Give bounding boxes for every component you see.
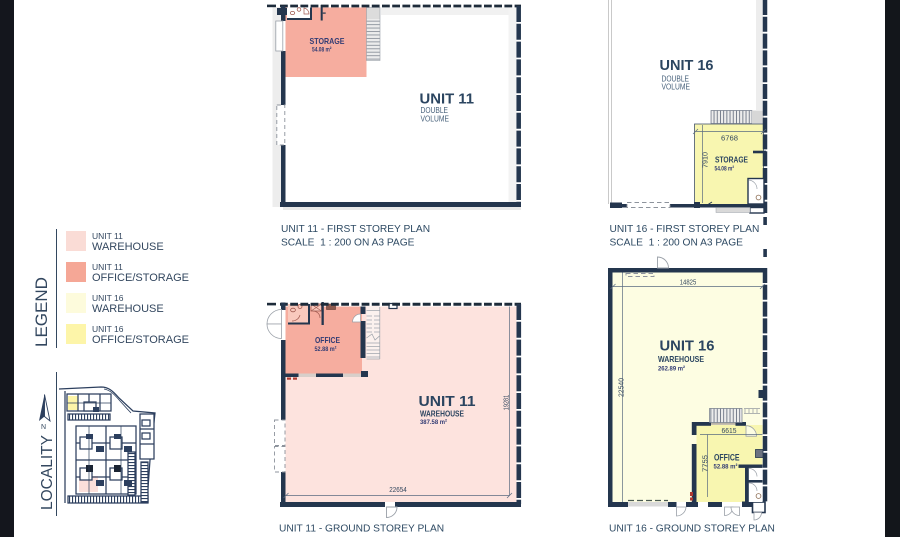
svg-text:WAREHOUSE: WAREHOUSE [92,241,164,253]
svg-text:OFFICE/STORAGE: OFFICE/STORAGE [92,334,189,346]
svg-text:UNIT 11: UNIT 11 [419,393,476,410]
svg-text:UNIT 11 - GROUND STOREY PLAN: UNIT 11 - GROUND STOREY PLAN [279,524,444,535]
svg-text:387.58 m²: 387.58 m² [420,419,448,426]
svg-text:52.88 m²: 52.88 m² [315,346,338,353]
svg-text:LOCALITY: LOCALITY [39,435,56,510]
svg-text:SCALE 1 : 200 ON A3 PAGE: SCALE 1 : 200 ON A3 PAGE [610,238,744,249]
svg-text:UNIT 16: UNIT 16 [92,324,124,334]
svg-text:UNIT 11 - FIRST STOREY PLAN: UNIT 11 - FIRST STOREY PLAN [281,224,430,235]
svg-text:LEGEND: LEGEND [32,277,51,347]
svg-text:54.08 m²: 54.08 m² [715,166,735,173]
svg-text:WAREHOUSE: WAREHOUSE [658,354,704,364]
svg-text:OFFICE/STORAGE: OFFICE/STORAGE [92,272,189,284]
svg-text:UNIT 16 - FIRST STOREY PLAN: UNIT 16 - FIRST STOREY PLAN [610,224,760,235]
svg-text:OFFICE: OFFICE [315,335,340,345]
svg-text:UNIT 16: UNIT 16 [660,57,714,74]
svg-text:SCALE 1 : 200 ON A3 PAGE: SCALE 1 : 200 ON A3 PAGE [281,238,415,249]
svg-text:52.88 m²: 52.88 m² [714,464,739,471]
svg-text:7910: 7910 [703,152,710,168]
svg-text:N: N [41,424,46,431]
svg-text:7755: 7755 [703,455,710,472]
svg-text:14825: 14825 [680,280,697,287]
svg-text:WAREHOUSE: WAREHOUSE [420,409,464,419]
svg-text:STORAGE: STORAGE [715,155,748,165]
svg-text:6615: 6615 [722,428,737,435]
svg-text:22654: 22654 [389,487,407,494]
svg-text:OFFICE: OFFICE [714,453,740,463]
svg-text:6768: 6768 [721,136,738,143]
svg-text:UNIT 16: UNIT 16 [660,338,715,355]
svg-text:262.89 m²: 262.89 m² [658,366,686,373]
svg-text:UNIT 16 - GROUND STOREY PLAN: UNIT 16 - GROUND STOREY PLAN [609,524,775,535]
svg-text:22540: 22540 [619,378,626,397]
svg-text:STORAGE: STORAGE [310,36,345,46]
svg-text:VOLUME: VOLUME [662,83,691,92]
svg-text:54.08 m²: 54.08 m² [312,47,332,54]
svg-text:UNIT 11: UNIT 11 [420,91,475,108]
svg-text:19281: 19281 [504,395,511,411]
svg-text:VOLUME: VOLUME [421,115,450,124]
svg-text:WAREHOUSE: WAREHOUSE [92,303,164,315]
svg-text:UNIT 11: UNIT 11 [92,231,123,241]
svg-text:UNIT 16: UNIT 16 [92,293,124,303]
svg-text:UNIT 11: UNIT 11 [92,262,123,272]
